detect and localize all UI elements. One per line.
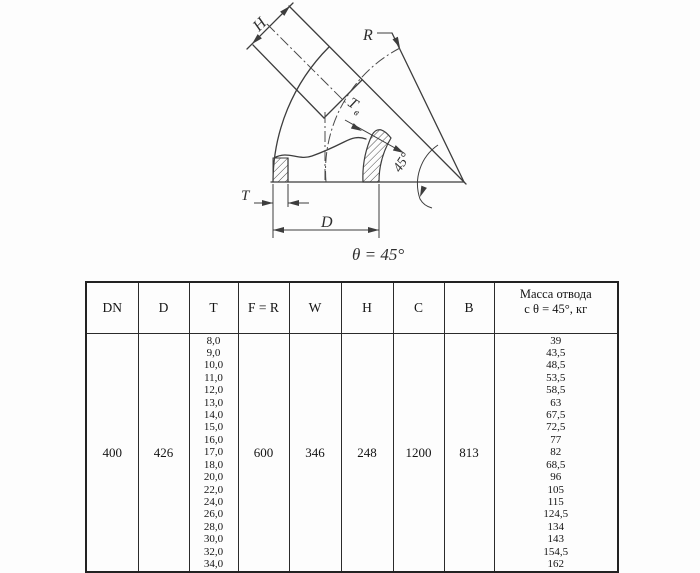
header-mass-line2: с θ = 45°, кг	[495, 302, 618, 317]
table-body-row: 400 426 8,09,010,011,012,013,014,015,016…	[86, 334, 618, 573]
angle-arc	[417, 145, 438, 208]
header-b: B	[444, 282, 494, 334]
list-value: 105	[495, 484, 618, 496]
header-mass-line1: Масса отвода	[495, 287, 618, 302]
cell-d: 426	[138, 334, 189, 573]
list-value: 43,5	[495, 347, 618, 359]
list-value: 162	[495, 558, 618, 570]
list-value: 26,0	[190, 508, 238, 520]
list-value: 53,5	[495, 372, 618, 384]
elbow-drawing: H R T в T D 45° θ = 45°	[0, 0, 700, 275]
pipe-axis-centerline	[267, 24, 349, 106]
cell-h: 248	[341, 334, 393, 573]
list-value: 16,0	[190, 434, 238, 446]
list-value: 12,0	[190, 384, 238, 396]
list-value: 15,0	[190, 421, 238, 433]
list-value: 10,0	[190, 359, 238, 371]
header-f-r: F = R	[238, 282, 289, 334]
list-value: 96	[495, 471, 618, 483]
dim-label-t: T	[241, 188, 251, 204]
dimension-table: DN D T F = R W H C B Масса отвода с θ = …	[85, 281, 619, 573]
list-value: 58,5	[495, 384, 618, 396]
dim-label-d: D	[320, 214, 333, 231]
list-value: 67,5	[495, 409, 618, 421]
list-value: 20,0	[190, 471, 238, 483]
list-value: 32,0	[190, 546, 238, 558]
list-value: 134	[495, 521, 618, 533]
cell-dn: 400	[86, 334, 138, 573]
cell-mass-list: 3943,548,553,558,56367,572,5778268,59610…	[494, 334, 618, 573]
angle-label: 45°	[391, 150, 414, 175]
left-wall-section	[273, 158, 288, 182]
list-value: 14,0	[190, 409, 238, 421]
dim-label-tb: T в	[343, 95, 366, 119]
list-value: 30,0	[190, 533, 238, 545]
list-value: 8,0	[190, 335, 238, 347]
header-w: W	[289, 282, 341, 334]
list-value: 63	[495, 397, 618, 409]
table-header-row: DN D T F = R W H C B Масса отвода с θ = …	[86, 282, 618, 334]
list-value: 115	[495, 496, 618, 508]
header-dn: DN	[86, 282, 138, 334]
dim-label-h: H	[249, 14, 271, 36]
t-values-list: 8,09,010,011,012,013,014,015,016,017,018…	[190, 334, 238, 571]
theta-label: θ = 45°	[352, 245, 404, 264]
header-d: D	[138, 282, 189, 334]
list-value: 82	[495, 446, 618, 458]
list-value: 22,0	[190, 484, 238, 496]
list-value: 143	[495, 533, 618, 545]
list-value: 17,0	[190, 446, 238, 458]
list-value: 18,0	[190, 459, 238, 471]
list-value: 48,5	[495, 359, 618, 371]
page: H R T в T D 45° θ = 45° DN D T F = R W H…	[0, 0, 700, 573]
header-mass: Масса отвода с θ = 45°, кг	[494, 282, 618, 334]
list-value: 124,5	[495, 508, 618, 520]
break-line	[274, 138, 366, 158]
header-h: H	[341, 282, 393, 334]
list-value: 154,5	[495, 546, 618, 558]
list-value: 34,0	[190, 558, 238, 570]
list-value: 24,0	[190, 496, 238, 508]
list-value: 11,0	[190, 372, 238, 384]
list-value: 72,5	[495, 421, 618, 433]
list-value: 9,0	[190, 347, 238, 359]
list-value: 39	[495, 335, 618, 347]
list-value: 28,0	[190, 521, 238, 533]
cell-b: 813	[444, 334, 494, 573]
list-value: 13,0	[190, 397, 238, 409]
mass-values-list: 3943,548,553,558,56367,572,5778268,59610…	[495, 334, 618, 571]
header-c: C	[393, 282, 444, 334]
list-value: 77	[495, 434, 618, 446]
bend-radius-arc	[326, 48, 400, 182]
header-t: T	[189, 282, 238, 334]
dim-label-r: R	[362, 27, 373, 44]
cell-f-r: 600	[238, 334, 289, 573]
list-value: 68,5	[495, 459, 618, 471]
cell-c: 1200	[393, 334, 444, 573]
cell-w: 346	[289, 334, 341, 573]
cell-t-list: 8,09,010,011,012,013,014,015,016,017,018…	[189, 334, 238, 573]
